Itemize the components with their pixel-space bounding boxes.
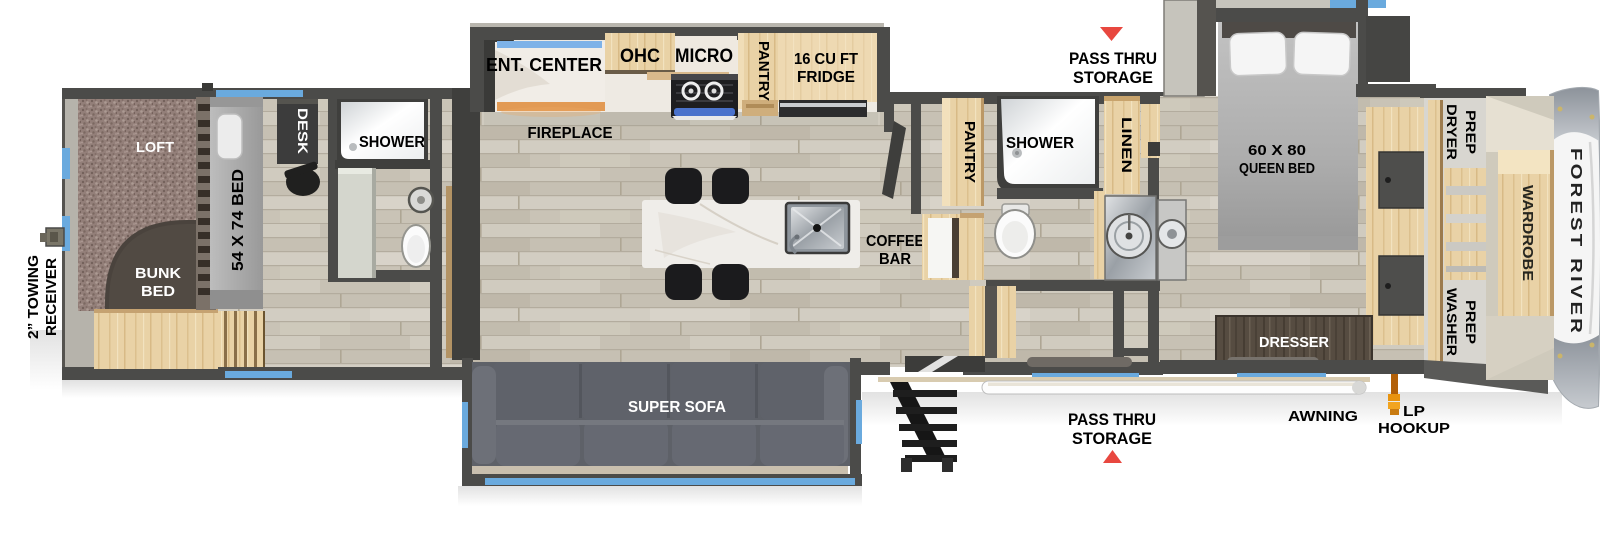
svg-text:RECEIVER: RECEIVER [43,258,60,336]
svg-text:OHC: OHC [620,46,660,67]
svg-text:DESK: DESK [295,108,311,154]
svg-text:BAR: BAR [879,251,911,268]
svg-text:QUEEN BED: QUEEN BED [1239,160,1315,177]
svg-text:2” TOWING: 2” TOWING [25,255,42,339]
svg-text:PASS THRU: PASS THRU [1068,410,1156,429]
svg-text:PASS THRU: PASS THRU [1069,49,1157,68]
svg-text:BUNK: BUNK [135,265,181,282]
svg-text:STORAGE: STORAGE [1072,429,1152,448]
svg-text:PREP: PREP [1463,300,1479,344]
svg-text:16 CU FT: 16 CU FT [794,51,858,68]
svg-text:LINEN: LINEN [1119,117,1135,173]
svg-text:DRESSER: DRESSER [1259,334,1329,351]
svg-text:BED: BED [141,283,175,300]
svg-text:FRIDGE: FRIDGE [797,69,855,86]
svg-text:WARDROBE: WARDROBE [1519,185,1536,281]
svg-text:54 X 74 BED: 54 X 74 BED [230,169,247,271]
svg-text:FOREST RIVER: FOREST RIVER [1567,148,1584,336]
svg-text:SHOWER: SHOWER [359,134,425,151]
svg-text:AWNING: AWNING [1288,408,1358,425]
svg-text:PANTRY: PANTRY [755,41,772,101]
svg-text:SUPER SOFA: SUPER SOFA [628,399,726,416]
svg-text:WASHER: WASHER [1444,288,1460,356]
svg-text:LP: LP [1403,403,1425,420]
svg-text:FIREPLACE: FIREPLACE [528,125,613,142]
svg-text:PREP: PREP [1463,110,1479,154]
svg-text:SHOWER: SHOWER [1006,135,1074,152]
svg-text:STORAGE: STORAGE [1073,68,1153,87]
svg-text:PANTRY: PANTRY [961,121,978,183]
svg-text:COFFEE: COFFEE [866,233,924,250]
svg-text:LOFT: LOFT [136,139,174,156]
svg-text:MICRO: MICRO [675,46,733,67]
svg-text:DRYER: DRYER [1444,104,1460,160]
svg-text:HOOKUP: HOOKUP [1378,420,1450,437]
svg-text:ENT. CENTER: ENT. CENTER [486,55,602,75]
svg-text:60 X 80: 60 X 80 [1248,142,1306,159]
